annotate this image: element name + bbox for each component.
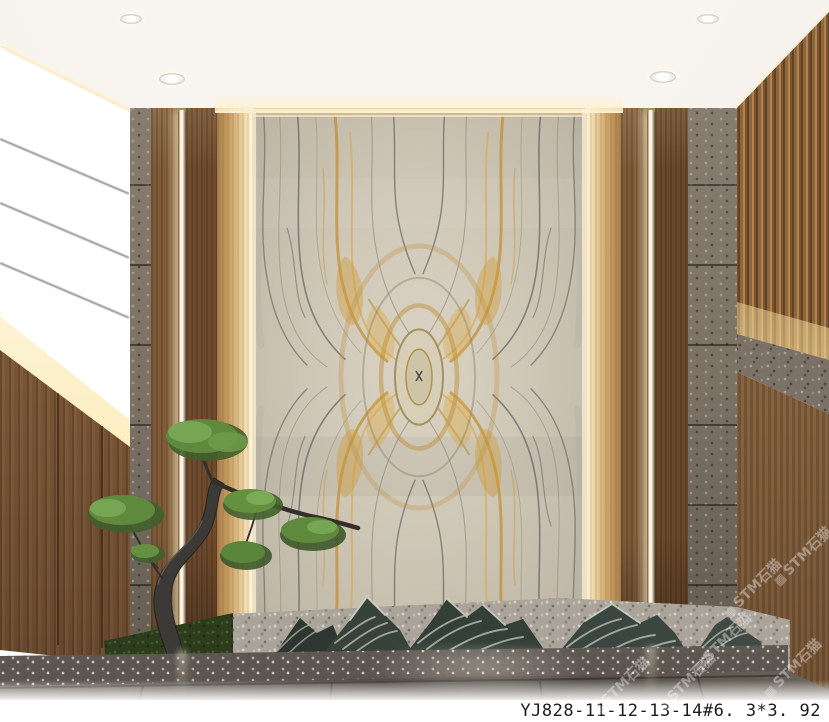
interior-render: YJ828-11-12-13-14#6. 3*3. 92 ▦STM石猫 ▦STM…: [0, 0, 829, 722]
ceiling-downlight: [650, 71, 676, 83]
marble-cove-light: [215, 92, 623, 113]
ceiling-downlight: [120, 14, 142, 24]
led-strip-right: [647, 110, 655, 638]
caption-strip: YJ828-11-12-13-14#6. 3*3. 92: [0, 700, 829, 722]
bonsai-tree: [78, 398, 383, 678]
backlight-panel-right: [585, 106, 621, 626]
plank-seam: [57, 393, 59, 645]
ceiling-downlight: [159, 73, 185, 85]
stone-pilaster-right: [688, 106, 737, 620]
wood-panel-right-inner: [621, 106, 647, 640]
ceiling-downlight: [697, 14, 719, 24]
wood-panel-right-outer: [655, 106, 688, 640]
tree-trunk: [154, 478, 224, 672]
